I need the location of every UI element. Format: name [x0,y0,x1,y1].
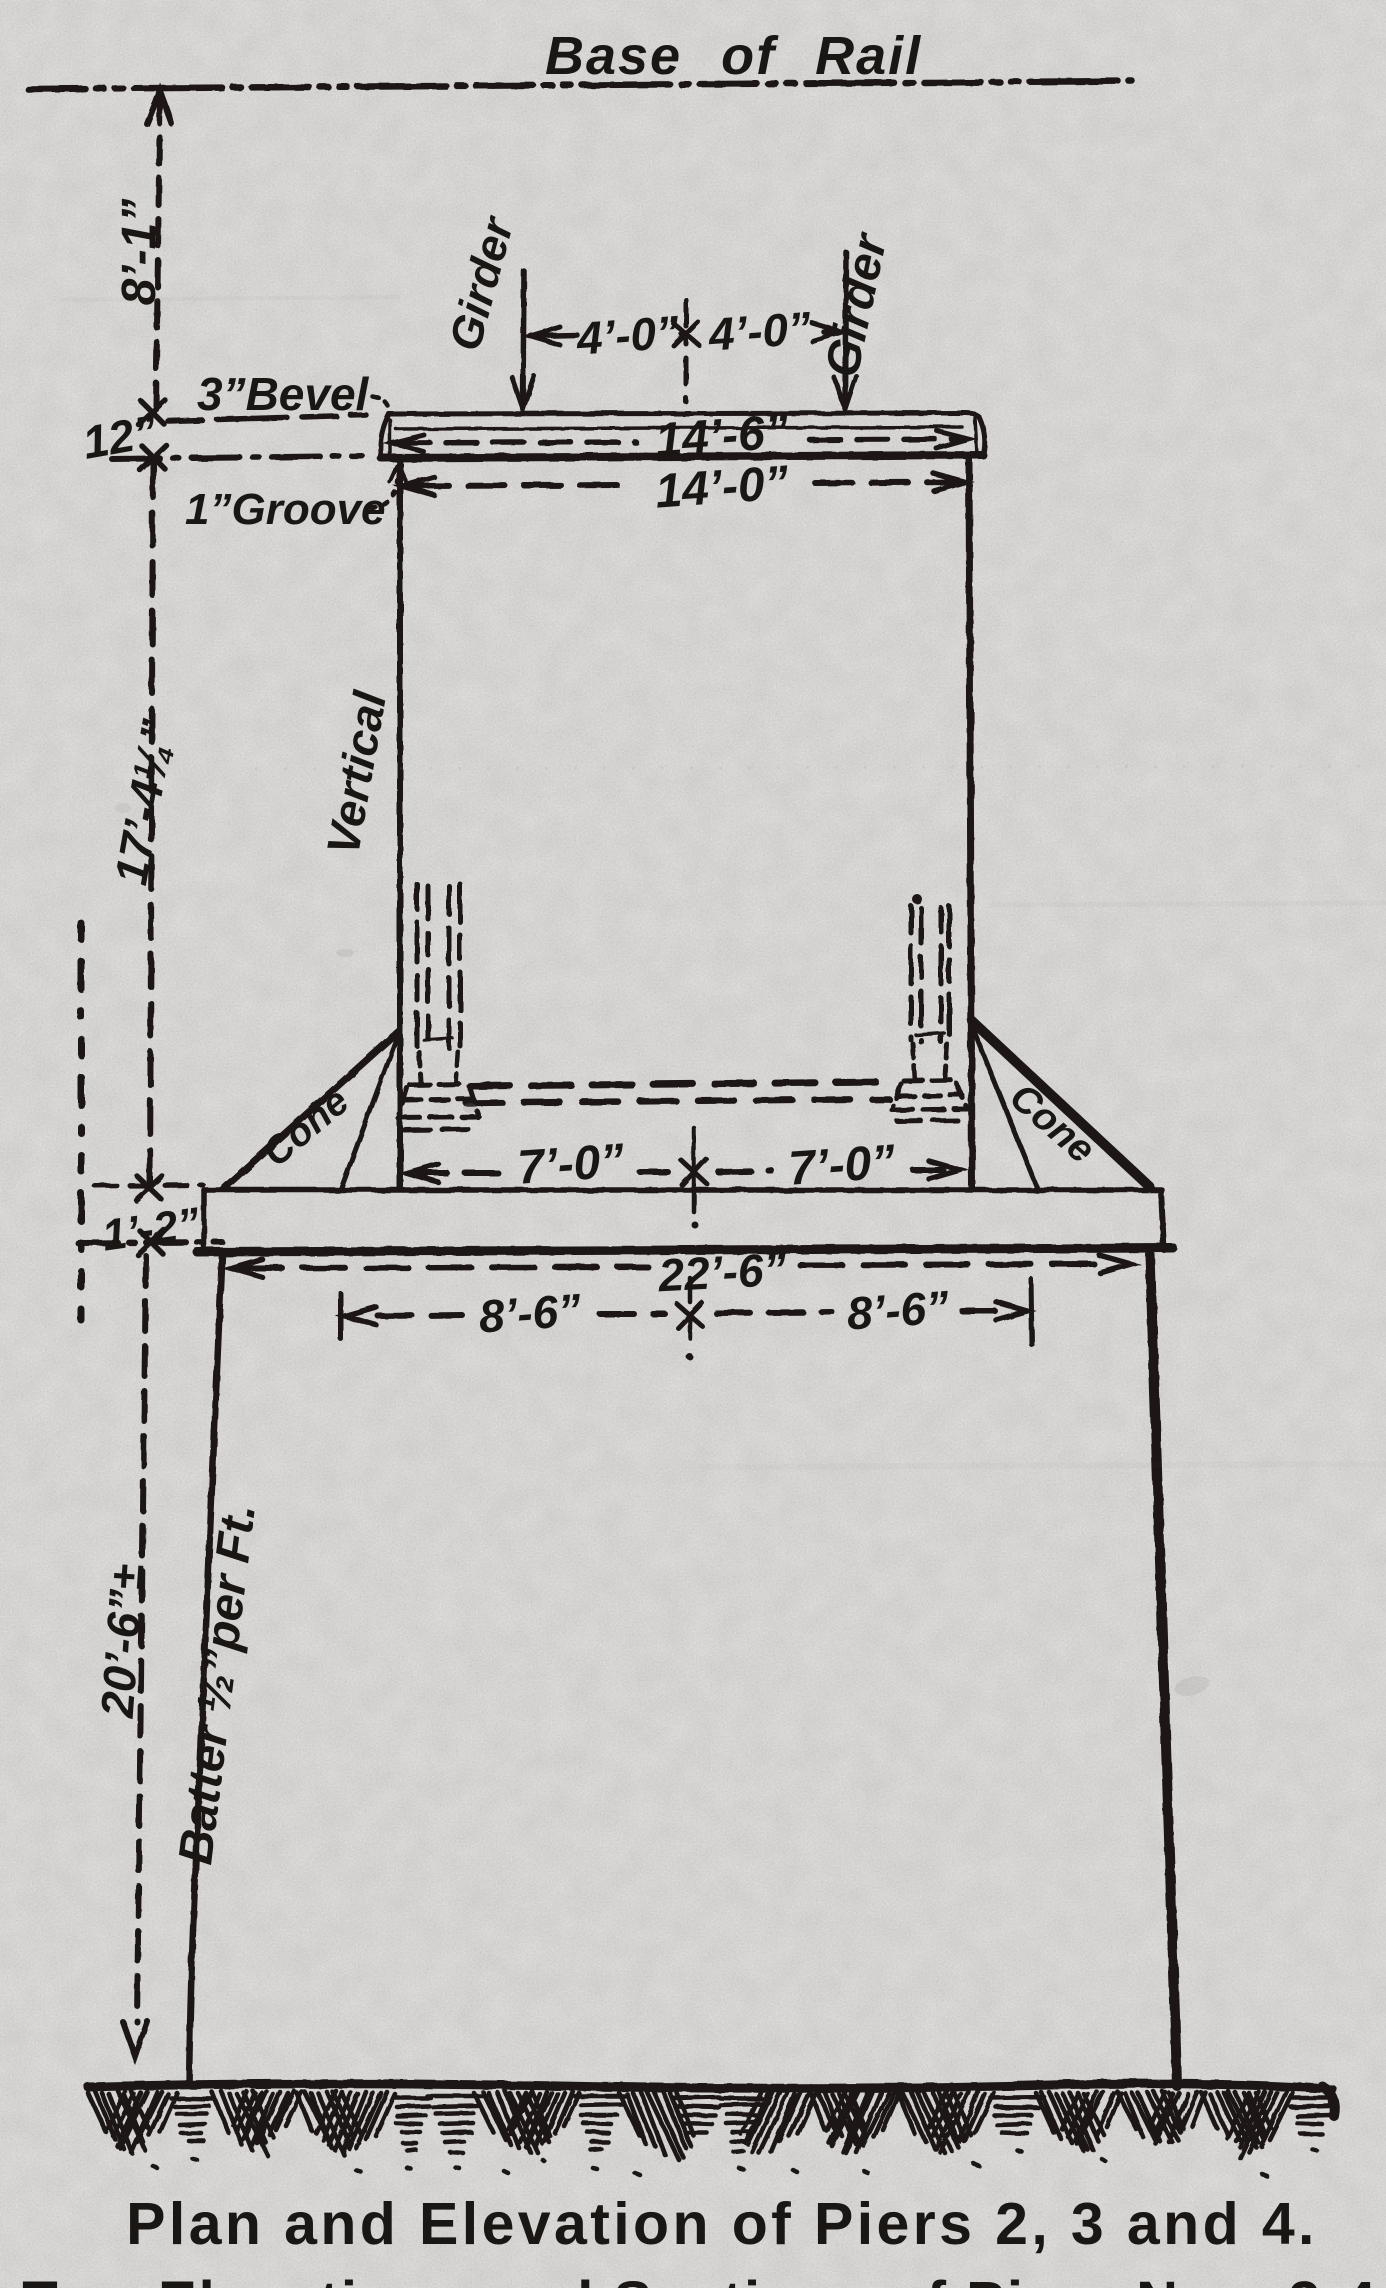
svg-text:22’-6”: 22’-6” [656,1243,787,1302]
svg-text:7’-0”: 7’-0” [516,1134,626,1194]
svg-text:1”Groove: 1”Groove [185,485,386,534]
svg-text:14’-0”: 14’-0” [654,456,791,518]
svg-text:20’-6”±: 20’-6”± [91,1562,154,1720]
svg-text:8’-6”: 8’-6” [477,1284,583,1343]
svg-text:Base of Rail: Base of Rail [545,26,922,86]
svg-text:Plan and Elevation of Piers 2,: Plan and Elevation of Piers 2, 3 and 4. [126,2191,1318,2257]
svg-text:3”Bevel: 3”Bevel [197,368,370,420]
svg-text:7’-0”: 7’-0” [787,1135,897,1195]
svg-text:8’-1”: 8’-1” [113,199,166,306]
svg-text:8’-6”: 8’-6” [845,1281,951,1340]
svg-text:4’-0”: 4’-0” [574,306,681,365]
svg-text:Two Elevations and Sections of: Two Elevations and Sections of Piers Nos… [22,2270,1378,2288]
svg-text:4’-0”: 4’-0” [706,302,813,361]
